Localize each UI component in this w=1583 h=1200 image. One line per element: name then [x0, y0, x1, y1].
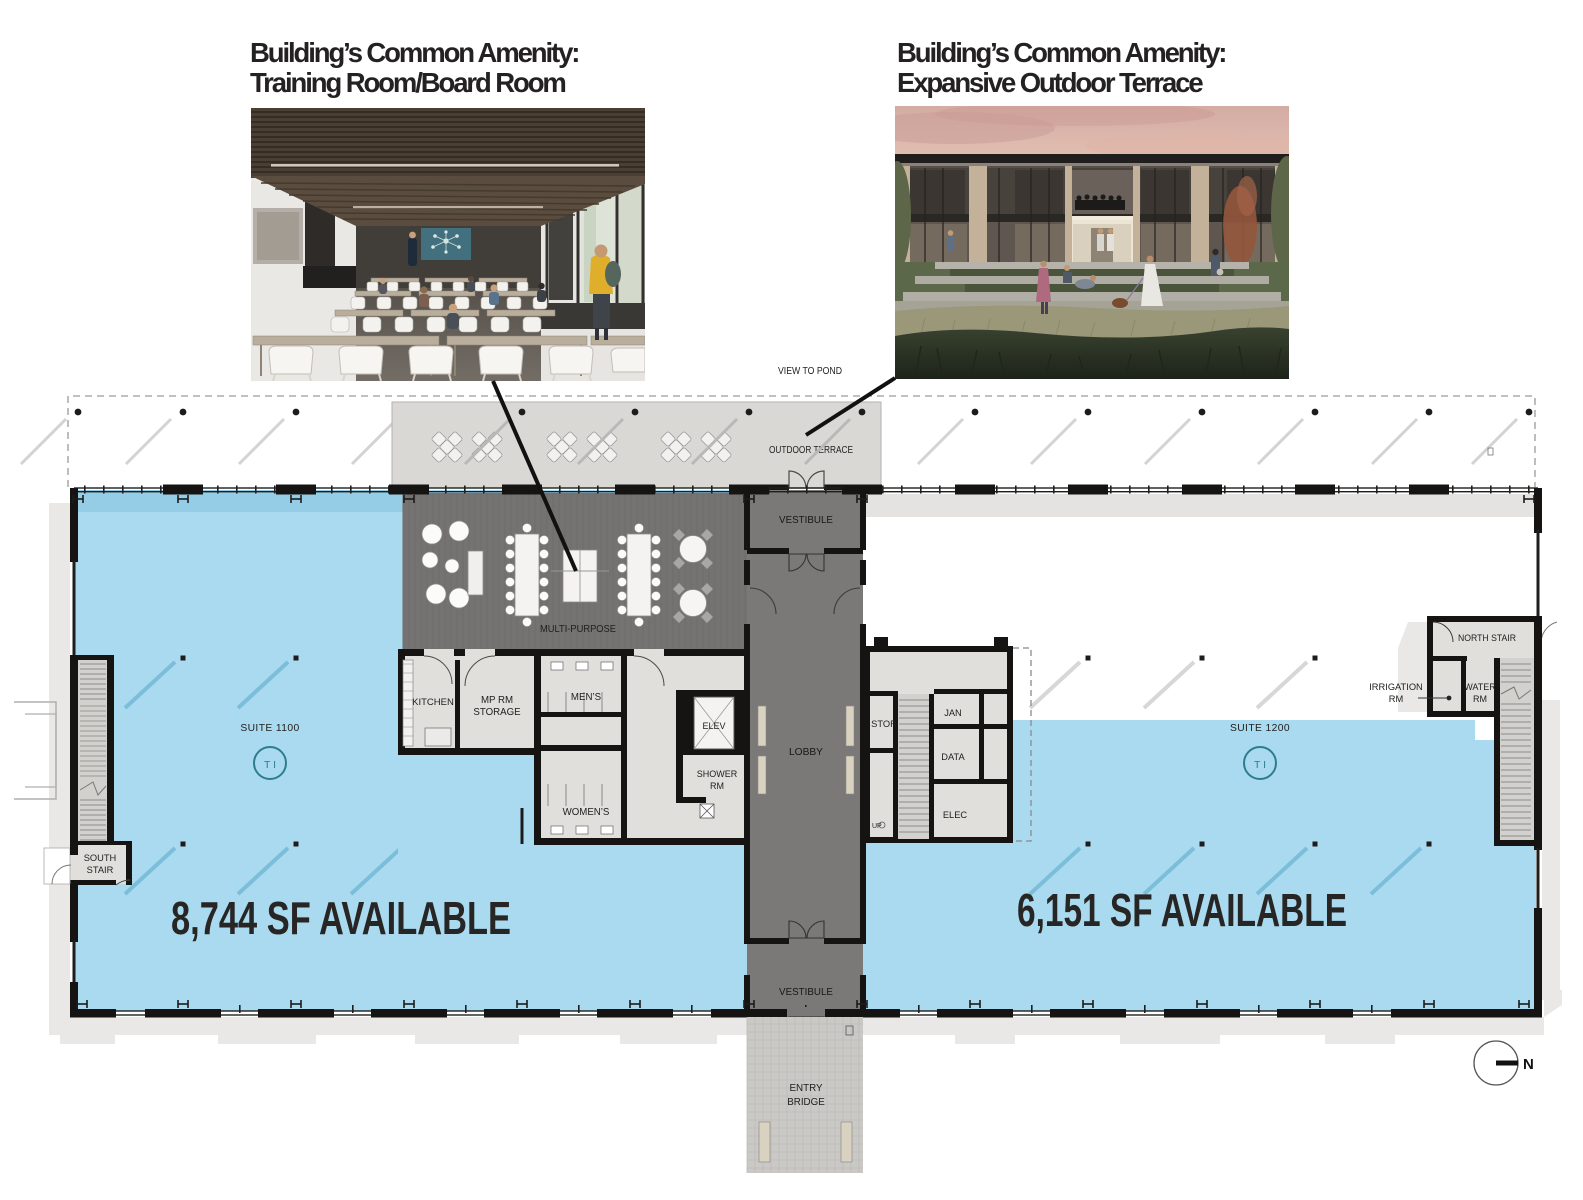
svg-text:LOBBY: LOBBY [789, 747, 823, 758]
svg-text:RM: RM [710, 781, 724, 791]
svg-text:ELEV: ELEV [702, 721, 725, 731]
svg-text:T I: T I [264, 759, 276, 771]
svg-text:STOR: STOR [871, 719, 897, 729]
svg-text:6,151 SF AVAILABLE: 6,151 SF AVAILABLE [1017, 884, 1347, 936]
svg-text:BRIDGE: BRIDGE [787, 1097, 825, 1108]
svg-text:DATA: DATA [941, 752, 965, 762]
svg-text:UP: UP [872, 823, 882, 830]
svg-text:IRRIGATION: IRRIGATION [1369, 682, 1423, 692]
svg-text:VESTIBULE: VESTIBULE [779, 515, 833, 526]
svg-text:N: N [1523, 1056, 1534, 1073]
svg-text:WOMEN’S: WOMEN’S [563, 807, 610, 818]
svg-text:ENTRY: ENTRY [789, 1083, 822, 1094]
svg-text:VESTIBULE: VESTIBULE [779, 987, 833, 998]
svg-text:STORAGE: STORAGE [473, 707, 521, 718]
svg-text:WATER: WATER [1464, 682, 1496, 692]
svg-text:KITCHEN: KITCHEN [412, 697, 454, 708]
svg-text:MULTI-PURPOSE: MULTI-PURPOSE [540, 624, 616, 635]
svg-text:SUITE 1200: SUITE 1200 [1230, 723, 1290, 734]
svg-text:SHOWER: SHOWER [697, 769, 738, 779]
svg-text:RM: RM [1473, 694, 1487, 704]
svg-text:ELEC: ELEC [943, 810, 968, 820]
svg-text:MEN’S: MEN’S [571, 692, 602, 703]
svg-text:JAN: JAN [944, 708, 962, 718]
svg-text:SOUTH: SOUTH [84, 853, 117, 863]
svg-text:T I: T I [1254, 759, 1266, 771]
svg-text:SUITE 1100: SUITE 1100 [240, 723, 299, 734]
svg-text:8,744 SF AVAILABLE: 8,744 SF AVAILABLE [171, 892, 511, 944]
svg-text:VIEW TO POND: VIEW TO POND [778, 366, 842, 377]
svg-text:RM: RM [1389, 694, 1403, 704]
svg-text:MP RM: MP RM [481, 695, 513, 706]
svg-text:NORTH STAIR: NORTH STAIR [1458, 633, 1516, 644]
svg-text:OUTDOOR TERRACE: OUTDOOR TERRACE [769, 444, 853, 456]
svg-text:STAIR: STAIR [87, 865, 114, 875]
